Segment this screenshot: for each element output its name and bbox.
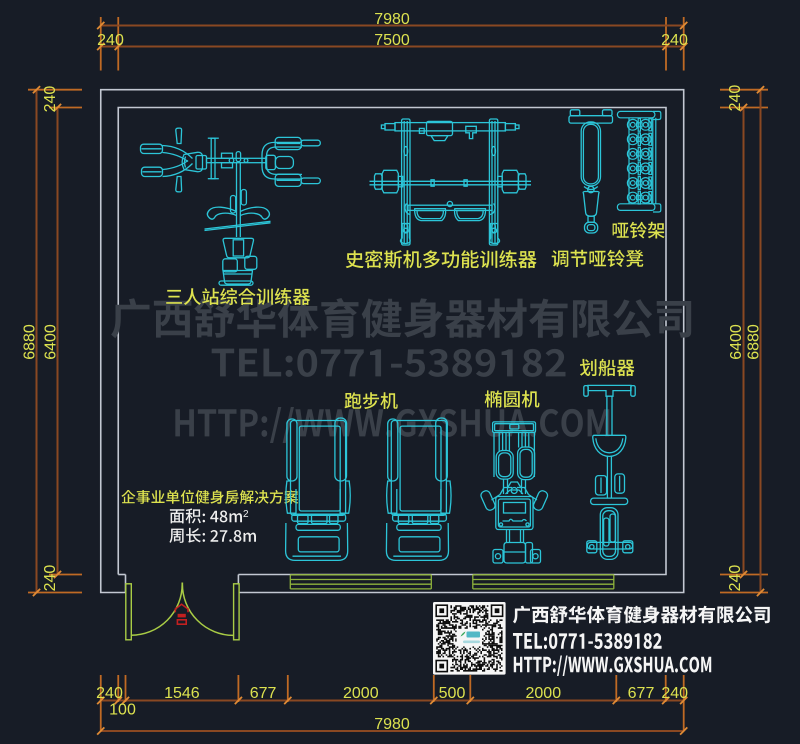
svg-text:240: 240 xyxy=(661,32,688,49)
svg-text:7500: 7500 xyxy=(374,32,410,49)
svg-text:240: 240 xyxy=(42,565,59,592)
svg-text:240: 240 xyxy=(661,685,688,702)
svg-text:6400: 6400 xyxy=(728,324,745,360)
svg-text:240: 240 xyxy=(727,85,744,112)
svg-text:677: 677 xyxy=(628,685,655,702)
svg-text:6880: 6880 xyxy=(746,324,763,360)
svg-text:240: 240 xyxy=(727,565,744,592)
svg-text:240: 240 xyxy=(96,685,123,702)
svg-text:500: 500 xyxy=(439,685,466,702)
svg-text:240: 240 xyxy=(42,86,59,113)
svg-text:7980: 7980 xyxy=(374,716,410,733)
svg-text:2000: 2000 xyxy=(526,685,562,702)
svg-text:2: 2 xyxy=(243,509,249,520)
svg-text:2000: 2000 xyxy=(343,685,379,702)
svg-text:677: 677 xyxy=(250,685,277,702)
svg-text:7980: 7980 xyxy=(374,11,410,28)
svg-text:1546: 1546 xyxy=(164,685,200,702)
svg-text:6400: 6400 xyxy=(43,324,60,360)
svg-text:100: 100 xyxy=(109,702,136,719)
svg-text:240: 240 xyxy=(97,32,124,49)
svg-text:6880: 6880 xyxy=(22,324,39,360)
